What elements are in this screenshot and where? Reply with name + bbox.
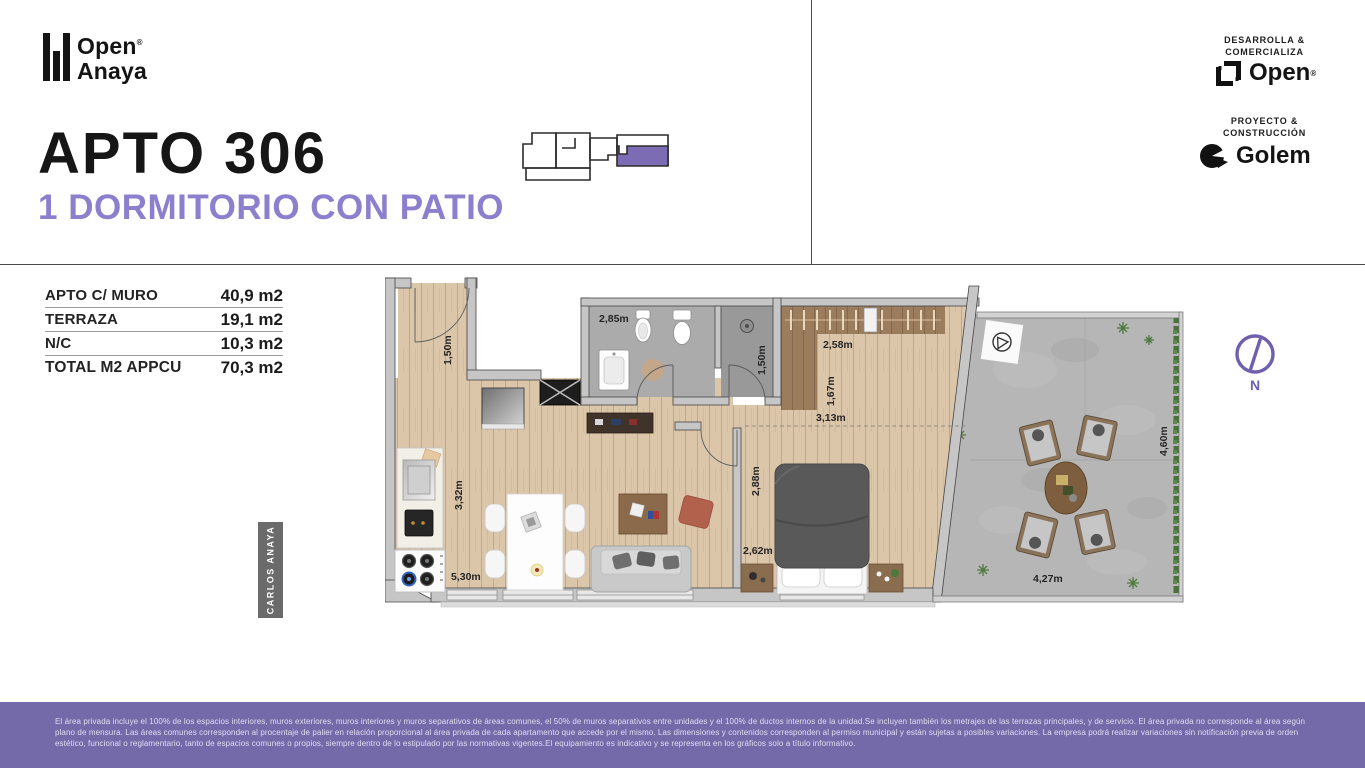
developer-registered-mark: ®: [1310, 69, 1316, 78]
keyplan-unit-step: [562, 138, 575, 148]
bidet: [635, 310, 651, 342]
bed: [775, 464, 869, 594]
kitchen: [395, 448, 445, 592]
area-label: APTO C/ MURO: [45, 287, 158, 304]
keyplan-highlighted-unit-306: [617, 146, 668, 166]
developer-name: Open: [1249, 59, 1310, 87]
area-value: 70,3 m2: [221, 358, 283, 378]
compass-north-label: N: [1250, 377, 1260, 393]
dining-chair: [485, 504, 505, 532]
stove: [395, 550, 445, 592]
dining-chair: [485, 550, 505, 578]
area-label: TERRAZA: [45, 311, 118, 328]
area-row-total: TOTAL M2 APPCU 70,3 m2: [45, 356, 283, 380]
dim-bath: 2,85m: [599, 313, 629, 325]
header-vertical-divider: [811, 0, 812, 264]
dim-shower: 1,50m: [756, 345, 768, 375]
area-label: N/C: [45, 335, 71, 352]
wall-bath-divider: [715, 306, 721, 368]
coffee-table: [619, 494, 667, 534]
logo-bar-icon: [53, 51, 60, 81]
area-row-apto: APTO C/ MURO 40,9 m2: [45, 284, 283, 308]
areas-table: APTO C/ MURO 40,9 m2 TERRAZA 19,1 m2 N/C…: [45, 284, 283, 380]
dim-patio-depth: 4,60m: [1158, 426, 1170, 456]
page-title: APTO 306: [38, 120, 327, 187]
compass-needle-icon: [1250, 340, 1260, 371]
developer-role-line2: COMERCIALIZA: [1172, 46, 1357, 58]
builder-role-line2: CONSTRUCCIÓN: [1172, 127, 1357, 139]
golem-icon: [1199, 141, 1229, 171]
legal-text: El área privada incluye el 100% de los e…: [55, 716, 1317, 750]
developer-role-line1: DESARROLLA &: [1172, 34, 1357, 46]
wall-left-exterior: [385, 278, 395, 582]
area-row-terraza: TERRAZA 19,1 m2: [45, 308, 283, 332]
dim-bedroom-side: 2,62m: [743, 545, 773, 557]
wall: [581, 298, 589, 405]
nightstand-right: [869, 564, 903, 592]
dim-closet-depth: 1,67m: [825, 376, 837, 406]
brand-wordmark: Open® Anaya: [77, 30, 147, 84]
coffee-machine: [405, 510, 433, 536]
street-label-text: CARLOS ANAYA: [266, 526, 276, 615]
building-key-plan: [520, 131, 672, 187]
area-value: 19,1 m2: [221, 310, 283, 330]
nightstand-left: [741, 564, 773, 592]
kitchen-sink-basin: [408, 466, 430, 494]
wall: [467, 370, 541, 380]
dim-bedroom-depth: 2,88m: [750, 466, 762, 496]
brand-word-open: Open: [77, 33, 137, 59]
developer-role-label: DESARROLLA & COMERCIALIZA: [1172, 34, 1357, 58]
north-compass: N: [1222, 328, 1288, 398]
open-bracket-icon: [1215, 60, 1242, 87]
golem-partner-logo: Golem: [1199, 141, 1311, 171]
builder-role-line1: PROYECTO &: [1172, 115, 1357, 127]
patio-tile-marker: [980, 320, 1023, 365]
grass-hedge: [1175, 316, 1178, 600]
dim-entry: 1,50m: [442, 335, 454, 365]
keyplan-unit: [523, 133, 556, 168]
closet-floor-column: [781, 306, 817, 410]
patio-round-table: [1045, 462, 1087, 514]
duct-shaft: [540, 380, 580, 405]
dim-closet-width: 2,58m: [823, 339, 853, 351]
area-label: TOTAL M2 APPCU: [45, 359, 182, 377]
street-label-carlos-anaya: CARLOS ANAYA: [258, 522, 283, 618]
entry-wardrobe: [482, 388, 524, 429]
page-subtitle: 1 DORMITORIO CON PATIO: [38, 188, 504, 228]
entry-hall-floor: [398, 283, 470, 383]
dim-kitchen-depth: 3,32m: [453, 480, 465, 510]
sofa: [591, 546, 691, 592]
open-anaya-logo: Open® Anaya: [43, 33, 243, 85]
builder-name: Golem: [1236, 142, 1311, 170]
dining-chair: [565, 504, 585, 532]
logo-bar-icon: [63, 33, 70, 81]
keyplan-unit: [590, 138, 617, 160]
tv-sideboard: [587, 413, 653, 433]
brand-word-anaya: Anaya: [77, 59, 147, 84]
dim-bedroom-width: 3,13m: [816, 412, 846, 424]
bed-duvet: [775, 464, 869, 568]
dim-living-width: 5,30m: [451, 571, 481, 583]
keyplan-unit: [526, 168, 590, 180]
open-partner-logo: Open®: [1215, 59, 1316, 87]
builder-role-label: PROYECTO & CONSTRUCCIÓN: [1172, 115, 1357, 139]
shower-drain: [741, 320, 754, 333]
wall: [675, 422, 701, 430]
wall: [773, 298, 781, 405]
bathroom-sink: [599, 350, 629, 390]
wall: [765, 397, 781, 405]
dim-patio-width: 4,27m: [1033, 573, 1063, 585]
floor-plan-drawing: 1,50m 2,85m 1,50m 2,58m 1,67m 3,13m 2,88…: [385, 270, 1185, 610]
logo-bar-icon: [43, 33, 50, 81]
floorplan-sheet: Open® Anaya APTO 306 1 DORMITORIO CON PA…: [0, 0, 1365, 768]
area-value: 10,3 m2: [221, 334, 283, 354]
registered-mark: ®: [137, 38, 143, 47]
dining-chair: [565, 550, 585, 578]
keyplan-unit: [556, 133, 590, 168]
header-horizontal-divider: [0, 264, 1365, 265]
wall: [581, 397, 637, 405]
area-row-nc: N/C 10,3 m2: [45, 332, 283, 356]
area-value: 40,9 m2: [221, 286, 283, 306]
wall: [673, 397, 729, 405]
toilet: [673, 310, 691, 345]
legal-footer-bar: El área privada incluye el 100% de los e…: [0, 702, 1365, 768]
